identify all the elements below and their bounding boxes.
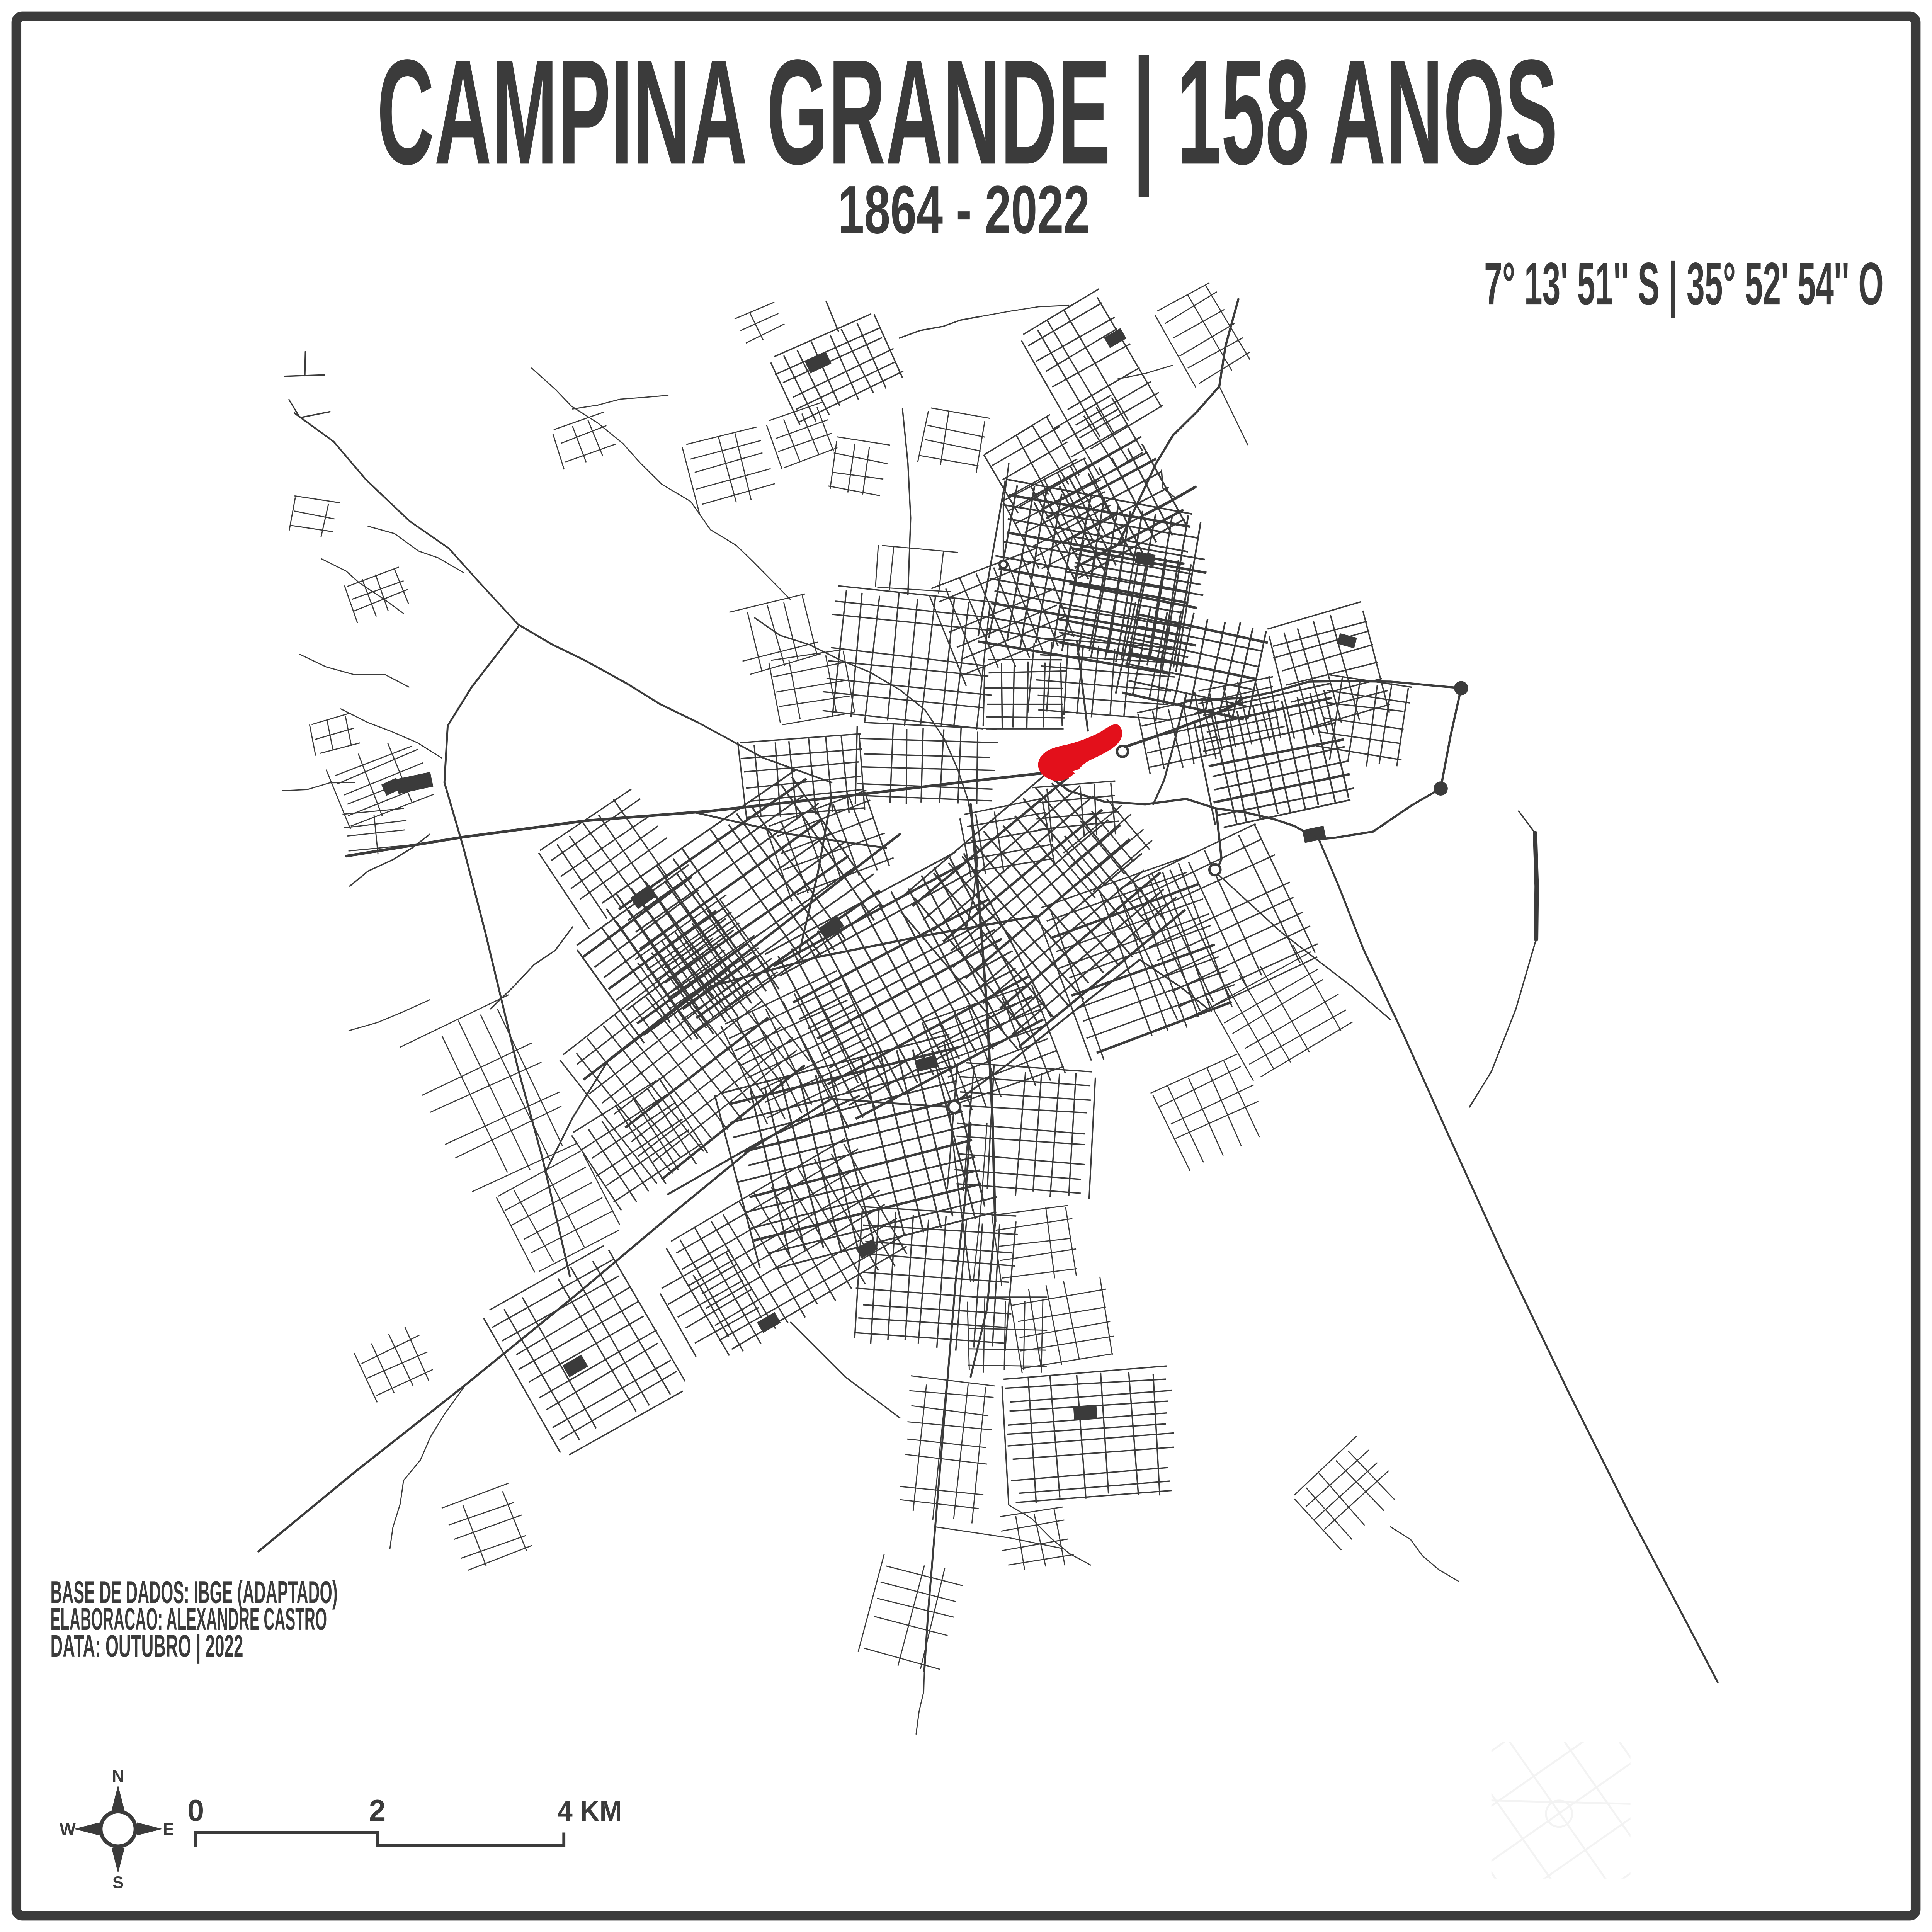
svg-text:1864 - 2022: 1864 - 2022 xyxy=(838,171,1090,248)
svg-text:W: W xyxy=(60,1820,76,1839)
svg-text:E: E xyxy=(163,1820,174,1839)
svg-text:DATA: OUTUBRO | 2022: DATA: OUTUBRO | 2022 xyxy=(51,1629,243,1664)
svg-text:7° 13' 51'' S | 35° 52' 54'' O: 7° 13' 51'' S | 35° 52' 54'' O xyxy=(1484,250,1884,318)
svg-text:2: 2 xyxy=(369,1794,386,1827)
svg-text:0: 0 xyxy=(187,1794,204,1827)
svg-text:4 KM: 4 KM xyxy=(558,1795,622,1827)
svg-text:N: N xyxy=(112,1767,124,1786)
svg-text:S: S xyxy=(112,1873,124,1892)
